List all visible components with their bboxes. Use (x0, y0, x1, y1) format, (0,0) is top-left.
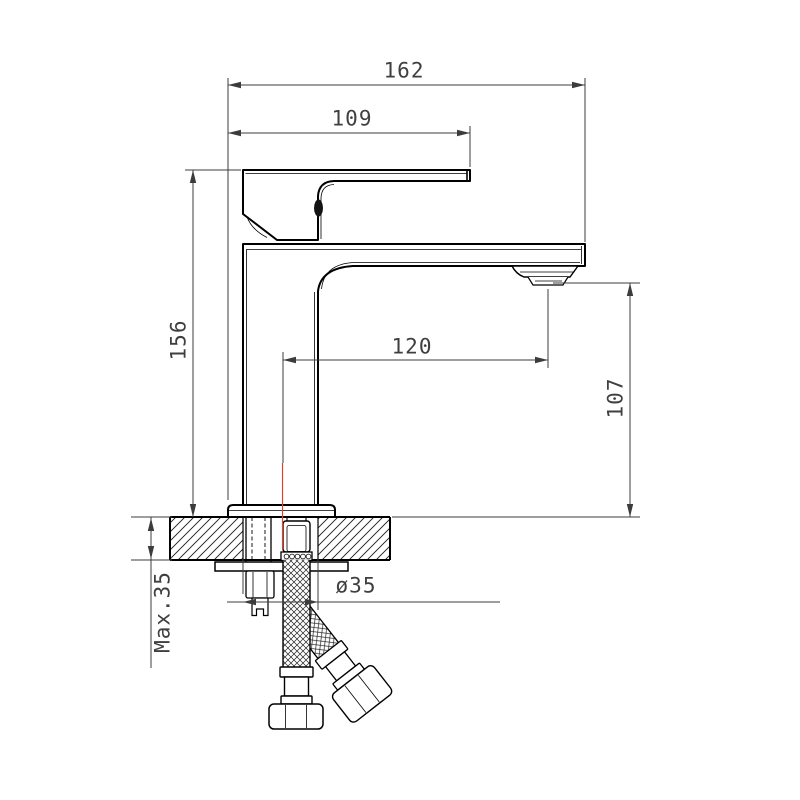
hose-hex-nut (269, 704, 323, 729)
mounting-washer-plate (215, 562, 348, 571)
hose-barrel (285, 677, 309, 696)
faucet-aerator (512, 266, 578, 285)
hole-diameter-label: ø35 (334, 576, 379, 597)
body-height-label: 156 (169, 318, 190, 363)
stud-nut (246, 571, 274, 598)
faucet-handle (243, 170, 470, 240)
faucet-line-art (0, 0, 800, 800)
spout-height-label: 107 (606, 376, 627, 421)
hose-ring (281, 696, 312, 704)
hose-collar (280, 667, 313, 677)
hose-crimp-collar (281, 552, 312, 561)
faucet-technical-drawing: 162 109 156 120 107 Max.35 ø35 (0, 0, 800, 800)
mounting-deck (170, 517, 390, 560)
max-mounting-thickness-label: Max.35 (153, 569, 174, 655)
handle-length-label: 109 (330, 109, 375, 130)
spout-reach-label: 120 (390, 337, 435, 358)
handle-set-screw (314, 200, 323, 217)
faucet-base-flange (228, 505, 335, 517)
dimension-lines (131, 78, 640, 668)
hose-connector (281, 516, 312, 561)
overall-width-label: 162 (382, 61, 427, 82)
